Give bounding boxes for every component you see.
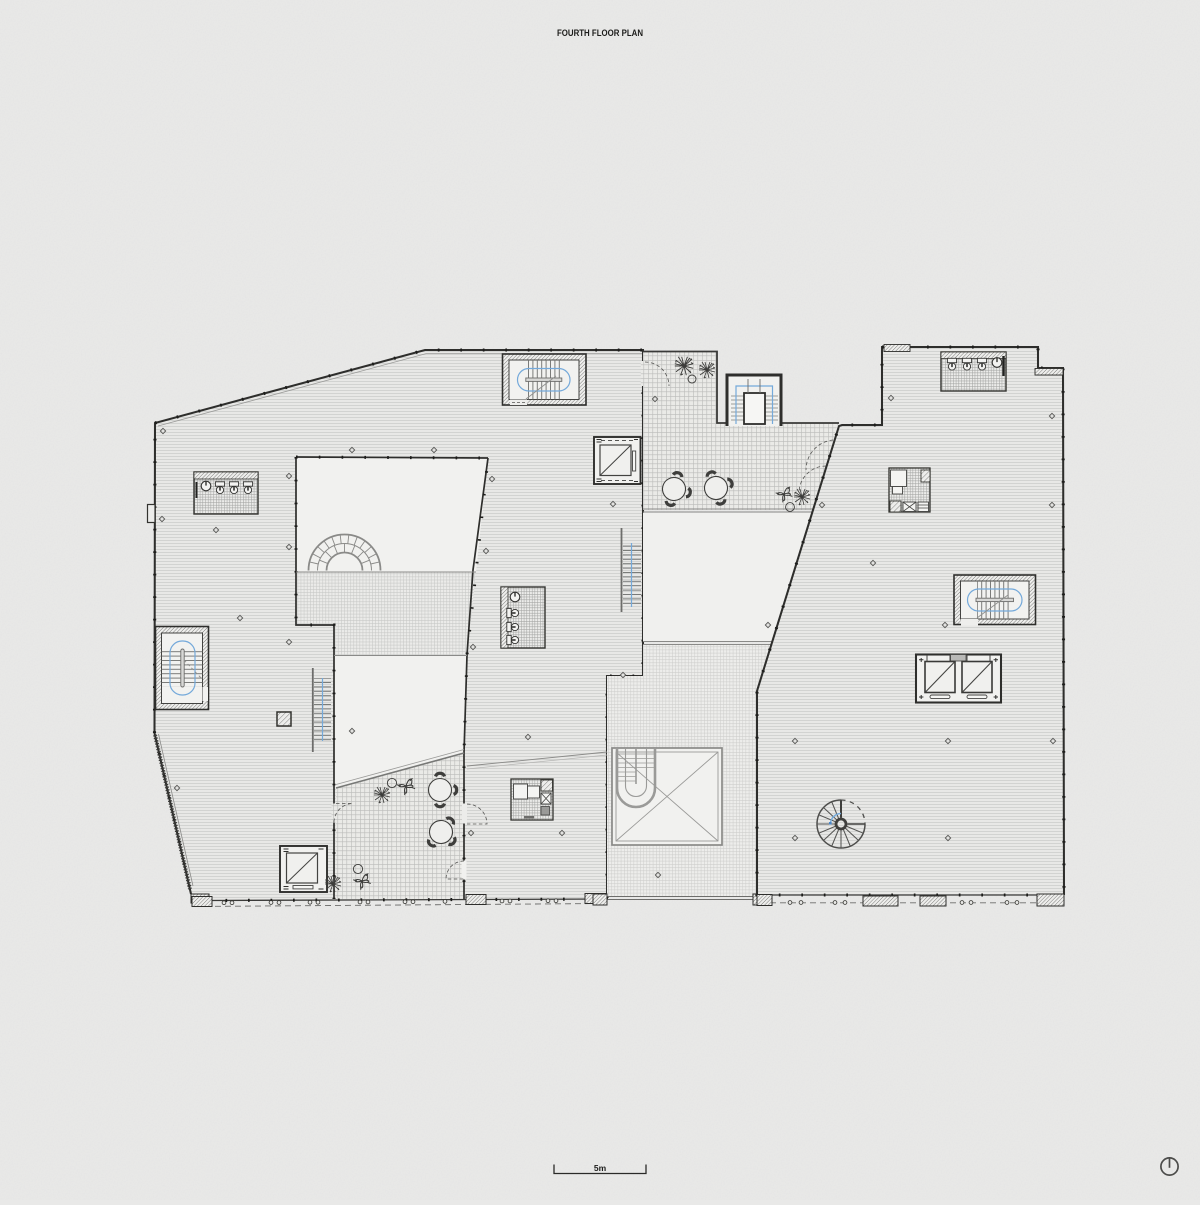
svg-text:5m: 5m: [594, 1163, 607, 1173]
svg-text:FOURTH FLOOR PLAN: FOURTH FLOOR PLAN: [557, 28, 643, 38]
